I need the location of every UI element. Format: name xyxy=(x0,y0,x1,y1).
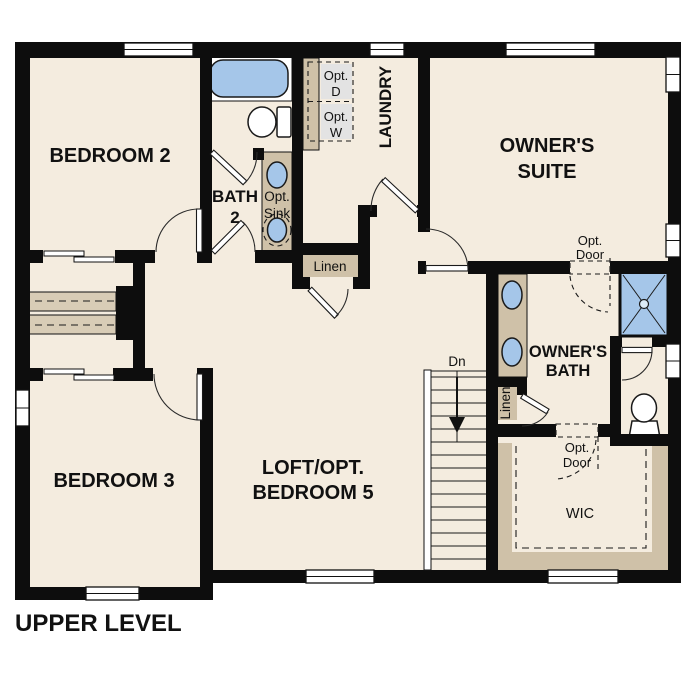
room-label-wic: WIC xyxy=(566,506,594,522)
label-opt-dryer-line1: Opt. xyxy=(324,68,349,83)
wall-segment xyxy=(358,205,377,217)
label-opt-sink-line1: Opt. xyxy=(264,189,290,204)
room-label-bedroom3: BEDROOM 3 xyxy=(53,470,174,492)
bypass-door-panel xyxy=(74,375,114,380)
bedroom3-door-leaf xyxy=(197,374,203,420)
wall-segment xyxy=(25,250,43,263)
wall-segment xyxy=(613,336,622,347)
floor-plan-upper-level: BEDROOM 2 BEDROOM 3 BATH 2 LAUNDRY OWNER… xyxy=(0,0,687,687)
wic-shelf-right xyxy=(652,446,668,552)
bypass-door-panel xyxy=(44,251,84,256)
wall-segment xyxy=(468,261,570,274)
room-label-loft-line1: LOFT/OPT. xyxy=(262,457,364,479)
owners-toilet-tank xyxy=(630,421,660,435)
wall-segment xyxy=(358,205,370,289)
bedroom2-door-leaf xyxy=(197,209,203,252)
wall-segment xyxy=(15,368,43,381)
wall-segment xyxy=(292,277,310,289)
owners-sink-1 xyxy=(502,281,522,309)
page-title: UPPER LEVEL xyxy=(15,610,182,637)
room-label-bath2-line1: BATH xyxy=(212,187,258,206)
bath2-toilet-tank xyxy=(277,107,291,137)
label-opt-washer-line2: W xyxy=(330,125,343,140)
bypass-door-panel xyxy=(74,257,114,262)
wall-segment xyxy=(133,250,145,381)
owners-toilet-bowl xyxy=(632,394,657,422)
shower-drain-icon xyxy=(640,300,649,309)
room-label-bedroom2: BEDROOM 2 xyxy=(49,145,170,167)
laundry-cabinet xyxy=(303,58,319,150)
wall-segment xyxy=(668,42,681,583)
label-opt-door-wic-line1: Opt. xyxy=(565,440,590,455)
wall-segment xyxy=(486,261,498,570)
room-label-bath2-line2: 2 xyxy=(230,208,239,227)
wall-segment xyxy=(116,286,133,340)
room-label-owners-bath-line1: OWNER'S xyxy=(529,343,607,361)
bypass-door-panel xyxy=(44,369,84,374)
room-label-owners-suite-line2: SUITE xyxy=(518,161,577,183)
owners-sink-2 xyxy=(502,338,522,366)
wall-segment xyxy=(113,368,153,381)
room-label-loft-line2: BEDROOM 5 xyxy=(252,482,373,504)
wall-segment xyxy=(253,148,264,160)
wall-segment xyxy=(418,261,426,274)
owners-suite-door-leaf xyxy=(426,266,468,272)
wall-segment xyxy=(517,377,527,395)
wall-segment xyxy=(15,42,30,600)
room-label-laundry: LAUNDRY xyxy=(376,65,395,148)
bath2-toilet-bowl xyxy=(248,107,276,137)
label-opt-door-suite-line1: Opt. xyxy=(578,233,603,248)
label-opt-dryer-line2: D xyxy=(331,84,340,99)
label-linen-hall: Linen xyxy=(313,259,346,274)
wall-segment xyxy=(598,424,610,437)
wall-segment xyxy=(418,56,430,232)
wall-segment xyxy=(610,261,668,274)
room-label-owners-bath-line2: BATH xyxy=(546,362,591,380)
wall-segment xyxy=(486,424,556,437)
toilet-room-door-leaf xyxy=(622,347,652,352)
room-label-owners-suite-line1: OWNER'S xyxy=(500,135,595,157)
label-opt-door-wic-line2: Door xyxy=(563,455,592,470)
wic-shelf-left xyxy=(498,443,512,570)
label-opt-sink-line2: Sink xyxy=(264,206,291,221)
wic-shelf-bottom xyxy=(498,552,668,570)
label-opt-washer-line1: Opt. xyxy=(324,109,349,124)
wall-segment xyxy=(610,336,621,446)
label-linen-owners: Linen xyxy=(498,386,513,419)
wall-segment xyxy=(610,434,668,446)
label-stairs-down: Dn xyxy=(448,354,465,369)
bath2-optional-sink xyxy=(268,218,287,242)
stair-rail xyxy=(424,370,431,570)
bathtub-icon xyxy=(210,60,288,97)
floor-plan-drawing: BEDROOM 2 BEDROOM 3 BATH 2 LAUNDRY OWNER… xyxy=(0,0,687,687)
bath2-sink xyxy=(267,162,287,188)
label-opt-door-suite-line2: Door xyxy=(576,247,605,262)
